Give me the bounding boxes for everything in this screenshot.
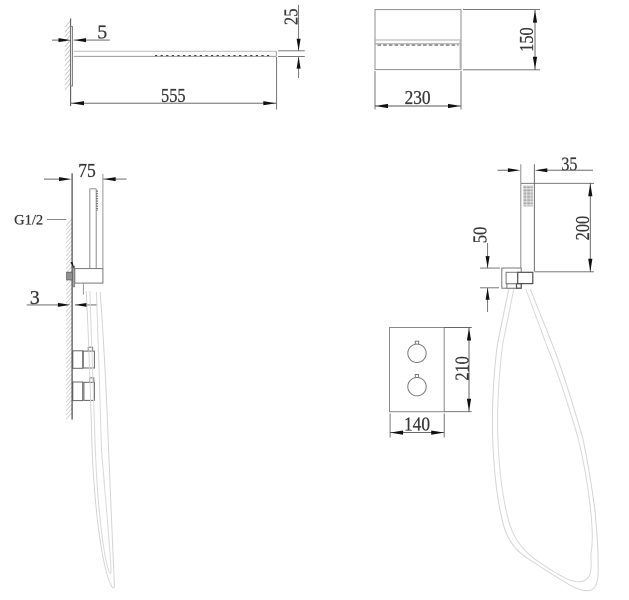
svg-text:35: 35 (561, 153, 577, 175)
svg-text:140: 140 (404, 413, 430, 435)
svg-text:210: 210 (451, 356, 473, 381)
svg-text:555: 555 (161, 85, 186, 107)
svg-text:5: 5 (97, 21, 107, 43)
svg-text:150: 150 (516, 27, 538, 52)
svg-text:3: 3 (30, 287, 40, 309)
svg-text:75: 75 (78, 160, 96, 182)
svg-text:200: 200 (572, 216, 594, 241)
svg-text:G1/2: G1/2 (14, 213, 43, 229)
svg-text:25: 25 (280, 8, 302, 25)
svg-text:50: 50 (469, 227, 491, 244)
svg-text:230: 230 (405, 87, 431, 109)
